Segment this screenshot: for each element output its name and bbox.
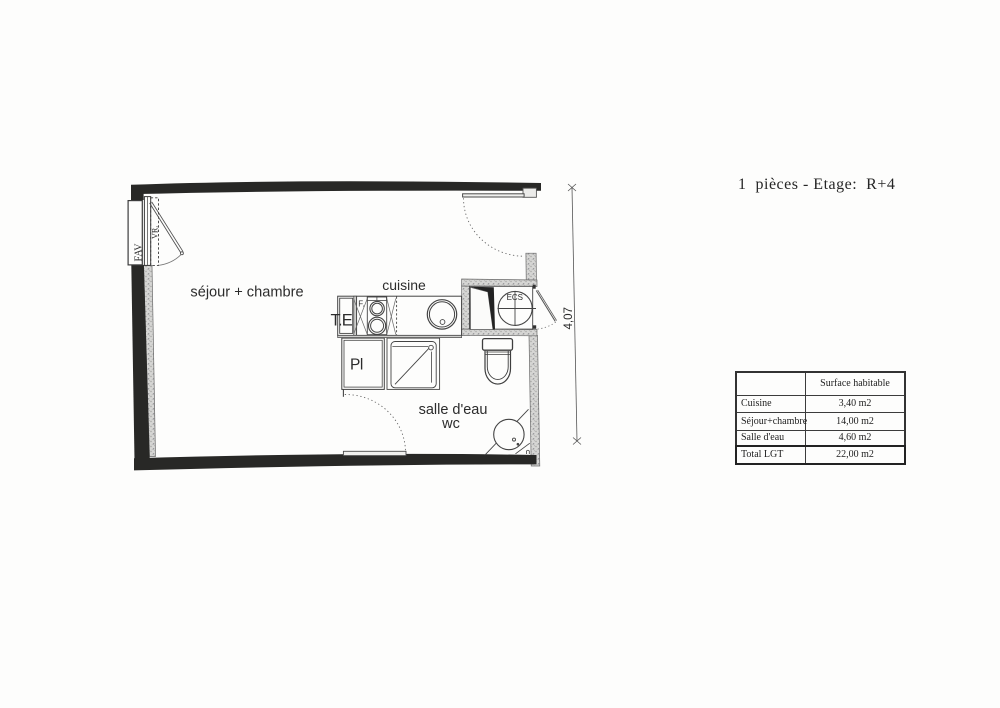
svg-text:cuisine: cuisine [382, 277, 426, 293]
svg-text:séjour + chambre: séjour + chambre [190, 285, 303, 301]
svg-text:Pl: Pl [350, 356, 363, 373]
svg-text:VR.: VR. [151, 226, 160, 239]
svg-text:ECS: ECS [507, 293, 523, 302]
svg-text:F.: F. [358, 299, 364, 308]
svg-text:FAV: FAV [134, 243, 145, 262]
svg-text:wc: wc [441, 416, 460, 432]
svg-text:T.E: T.E [331, 312, 353, 330]
svg-text:4,07: 4,07 [563, 307, 575, 329]
